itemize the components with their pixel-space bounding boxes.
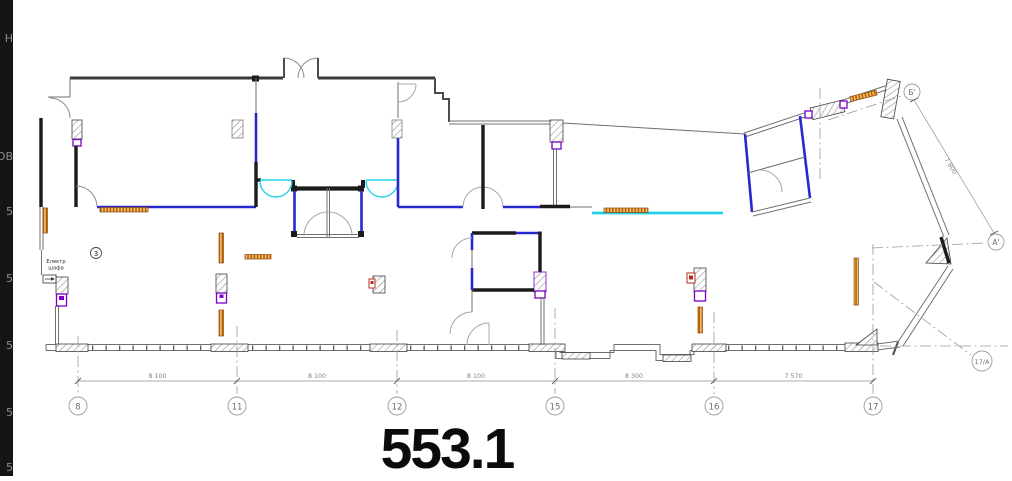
grid-marker-label: 8 xyxy=(75,403,80,413)
panel-text-fragment: Н xyxy=(5,32,13,45)
slanted-room xyxy=(745,116,811,216)
wall-pier xyxy=(663,355,691,362)
door-arc xyxy=(76,186,97,207)
door-arc xyxy=(760,170,782,192)
electrical-outlet-marker xyxy=(695,291,706,301)
column-shaft xyxy=(232,120,243,138)
door-double-cyan xyxy=(260,180,292,197)
lift-shaft xyxy=(256,180,365,238)
room1-walls xyxy=(72,78,256,207)
radiator xyxy=(245,255,271,260)
radiator xyxy=(854,258,859,305)
dimension-text: 7 570 xyxy=(784,373,802,380)
dimension-text: 8 100 xyxy=(308,373,326,380)
electrical-outlet-marker xyxy=(552,142,561,149)
grid-marker-label: 15 xyxy=(550,403,561,413)
panel-text-fragment: 5 xyxy=(6,406,13,419)
column-shaft xyxy=(72,120,82,139)
grid-marker-label: 11 xyxy=(232,403,243,413)
dimension-text: 8 100 xyxy=(467,373,485,380)
columns-and-devices xyxy=(43,100,847,306)
plan-labels: Електр шафа 3 xyxy=(46,248,101,272)
middle-room-walls xyxy=(392,82,723,213)
door-double-cyan xyxy=(366,180,398,197)
electrical-outlet-marker xyxy=(805,111,812,118)
grid-marker-label: 12 xyxy=(392,403,403,413)
radiator xyxy=(850,90,877,101)
axis-marker-label: Б' xyxy=(908,88,915,97)
axis-marker-label: 17/А xyxy=(975,358,990,366)
cabinet-label-line2: шафа xyxy=(48,266,64,272)
column-shaft xyxy=(694,268,706,292)
door-double-arc xyxy=(284,58,318,78)
bottom-centre-room xyxy=(450,232,546,346)
panel-text-fragment: 5 xyxy=(6,205,13,218)
column-shaft xyxy=(550,120,563,142)
radiator xyxy=(698,307,703,333)
radiator xyxy=(219,233,224,263)
edge-dimension-text: 7 800 xyxy=(943,157,958,176)
door-arc xyxy=(398,84,416,102)
wall-pier xyxy=(529,344,565,352)
wall-pier xyxy=(56,344,88,352)
wall-pier xyxy=(211,344,248,352)
door-arc xyxy=(50,98,70,118)
radiator xyxy=(100,208,148,213)
wall-pier xyxy=(692,344,726,352)
door-arc xyxy=(467,323,489,345)
panel-text-fragment: 5 xyxy=(6,339,13,352)
panel-text-fragment: 5 xyxy=(6,272,13,285)
radiators xyxy=(43,90,877,336)
panel-text-fragment: ОВ xyxy=(0,150,13,163)
grid-marker-label: 16 xyxy=(709,403,720,413)
electrical-outlet-marker xyxy=(73,140,81,147)
doors xyxy=(50,58,318,207)
radiator xyxy=(219,310,224,336)
room-tag: 3 xyxy=(94,250,98,258)
door-arc xyxy=(450,312,472,334)
radiator xyxy=(43,208,48,233)
wall-pier xyxy=(370,344,407,352)
area-value: 553.1 xyxy=(372,421,522,478)
wall-pier xyxy=(562,353,590,360)
left-panel-edge: Н ОВ 5 5 5 5 5 xyxy=(0,0,13,476)
panel-text-fragment: 5 xyxy=(6,461,13,474)
door-arc xyxy=(452,238,472,258)
column-shaft xyxy=(534,272,546,292)
radiator xyxy=(604,208,648,213)
axis-marker-label: А' xyxy=(992,238,999,247)
dimension-text: 8 100 xyxy=(148,373,166,380)
wall-pier xyxy=(856,329,877,345)
column-shaft xyxy=(392,120,402,138)
floor-plan-drawing: Електр шафа 3 8 100 8 100 8 100 8 300 7 … xyxy=(0,0,1012,476)
electrical-outlet-marker xyxy=(840,101,847,108)
column-shaft xyxy=(56,277,68,294)
column-shaft xyxy=(216,274,227,293)
door-arc xyxy=(304,212,352,236)
electrical-outlet-marker xyxy=(535,291,545,298)
cabinet-label-line1: Електр xyxy=(46,259,66,265)
grid-marker-label: 17 xyxy=(868,403,879,413)
dimension-text: 8 300 xyxy=(625,373,643,380)
